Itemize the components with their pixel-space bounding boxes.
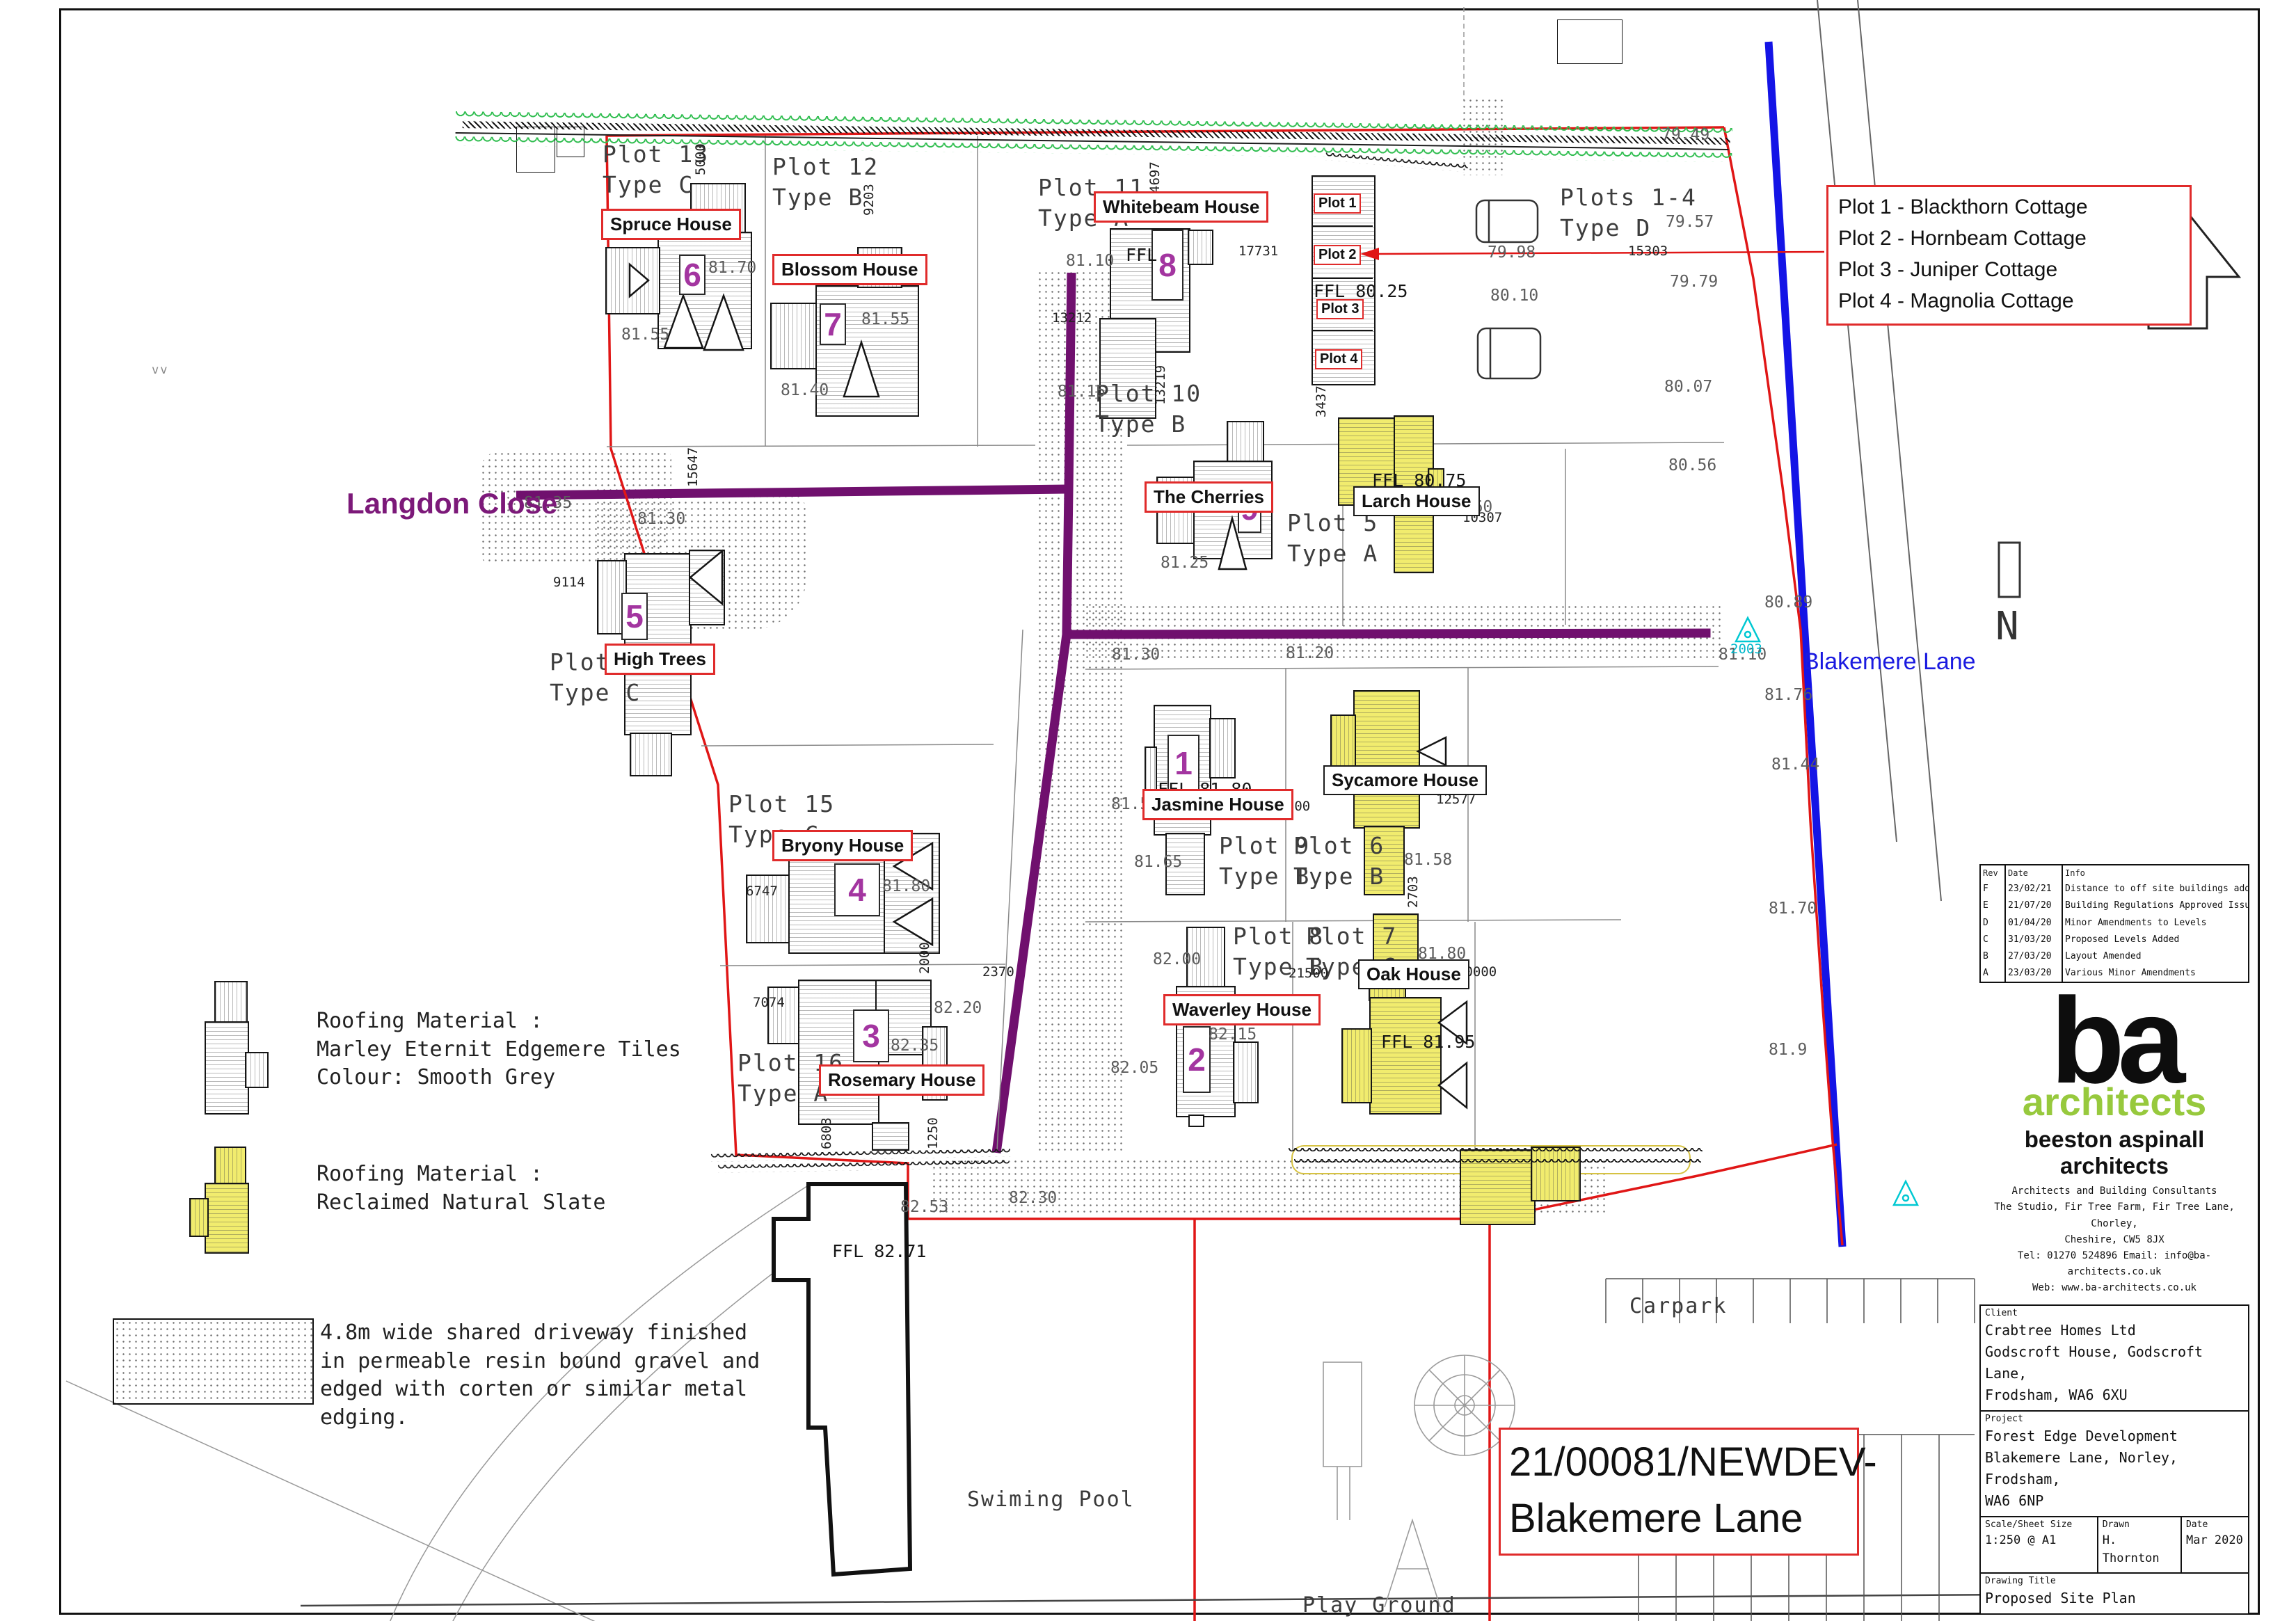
client-label: Client: [1981, 1306, 2248, 1318]
dimension: 5000: [693, 143, 708, 175]
building-regs-stamp: BUILDING REGULATIONS APPROVED: [1979, 1615, 2249, 1621]
spot-level: 81.40: [781, 381, 829, 399]
dimension: 7074: [753, 995, 785, 1010]
spot-level: 82.53: [900, 1198, 948, 1216]
spot-level: 81.58: [1404, 851, 1452, 869]
client-box: Client Crabtree Homes Ltd Godscroft Hous…: [1979, 1304, 2249, 1412]
house-label-blossom: Blossom House: [772, 254, 927, 285]
spot-level: 81.30: [1112, 646, 1160, 664]
langdon-close-label: Langdon Close: [346, 487, 557, 520]
playground-icons: [1323, 1355, 1515, 1607]
rev-cell: A: [1981, 965, 2006, 982]
roofing-note-slate: Roofing Material : Reclaimed Natural Sla…: [317, 1160, 605, 1217]
spot-level: 81.9: [1769, 1041, 1807, 1059]
rev-cell: C: [1981, 932, 2006, 948]
dimension: 6803: [819, 1117, 834, 1149]
dimension: 2703: [1405, 876, 1421, 908]
plot-label-10: Plot 10 Type B: [1095, 378, 1202, 439]
spot-level: 82.35: [891, 1037, 939, 1055]
spot-level: 81.10: [1066, 252, 1114, 270]
ffl-label: FFL 82.71: [832, 1241, 926, 1261]
architects-logo-text: architects: [1979, 1085, 2249, 1119]
dimension: 4697: [1147, 161, 1163, 193]
spot-level: 81.76: [1764, 686, 1812, 704]
planning-ref-box: 21/00081/NEWDEV- Blakemere Lane: [1499, 1428, 1859, 1556]
legend-item: Plot 3 - Juniper Cottage: [1838, 254, 2190, 285]
rev-cell: F: [1981, 881, 2006, 897]
spot-level: 81.25: [1161, 554, 1209, 572]
plot-label-6: Plot 6 Type B: [1293, 831, 1385, 891]
revision-table: Rev Date Info F 23/02/21 Distance to off…: [1979, 864, 2249, 983]
date-col-header: Date: [2006, 865, 2063, 881]
legend-item: Plot 4 - Magnolia Cottage: [1838, 285, 2190, 317]
spot-level: 80.07: [1664, 378, 1712, 396]
rev-cell: Building Regulations Approved Issue: [2063, 897, 2248, 914]
dimension: 15303: [1628, 243, 1668, 259]
unit-number-6: 6: [679, 255, 705, 295]
spot-level: 81.15: [1058, 383, 1106, 401]
house-label-spruce: Spruce House: [601, 209, 741, 240]
spot-level: 80.56: [1668, 456, 1716, 474]
rev-cell: 01/04/20: [2006, 915, 2063, 932]
house-label-larch: Larch House: [1353, 486, 1480, 516]
spot-level: 81.70: [1769, 900, 1817, 918]
date-value: Mar 2020: [2182, 1530, 2248, 1554]
spot-level: 82.15: [1209, 1025, 1257, 1044]
spot-level: 81.20: [1286, 644, 1334, 662]
date-label: Date: [2182, 1517, 2248, 1530]
dimension: 2000: [917, 942, 932, 974]
spot-level: 81.80: [882, 877, 930, 895]
rev-cell: Proposed Levels Added: [2063, 932, 2248, 948]
spot-level: 81.30: [637, 510, 685, 528]
dimension: 9114: [553, 575, 585, 590]
swimming-pool-label: Swiming Pool: [967, 1487, 1135, 1512]
firm-name: beeston aspinall architects: [1979, 1126, 2249, 1179]
rev-cell: D: [1981, 915, 2006, 932]
unit-number-4: 4: [834, 863, 880, 916]
dimension: 3437: [1314, 385, 1329, 417]
ba-logo: ba: [1979, 993, 2249, 1090]
spot-level: 82.20: [934, 999, 982, 1017]
unit-number-7: 7: [820, 303, 846, 345]
drawing-title-box: Drawing Title Proposed Site Plan: [1979, 1574, 2249, 1615]
rev-cell: 27/03/20: [2006, 948, 2063, 965]
spot-level: 82.30: [1009, 1189, 1057, 1207]
north-letter: N: [1995, 604, 2020, 649]
plot1-tag: Plot 1: [1314, 193, 1361, 214]
spot-level: 80.10: [1490, 287, 1538, 305]
ffl-label: FFL 81.95: [1381, 1032, 1475, 1052]
north-arrow-shaft: [1999, 543, 2020, 597]
spot-level: 81.55: [861, 310, 909, 328]
plot3-tag: Plot 3: [1316, 299, 1364, 319]
survey-ref: 2003: [1730, 641, 1762, 657]
rev-cell: E: [1981, 897, 2006, 914]
blakemere-lane-label: Blakemere Lane: [1803, 648, 1976, 676]
unit-number-8: 8: [1151, 230, 1183, 301]
spot-level: 80.89: [1764, 593, 1812, 612]
ffl-label: FFL 80.25: [1314, 281, 1408, 301]
scale-value: 1:250 @ A1: [1981, 1530, 2097, 1554]
house-label-cherries: The Cherries: [1145, 481, 1273, 513]
spot-level: 82.05: [1110, 1059, 1158, 1077]
dimension: 2370: [982, 964, 1014, 980]
play-ground-label: Play Ground: [1302, 1593, 1456, 1618]
house-label-hightrees: High Trees: [605, 644, 715, 675]
plot2-tag: Plot 2: [1314, 245, 1361, 265]
rev-col-header: Rev: [1981, 865, 2006, 881]
spot-level: 81.70: [708, 259, 756, 277]
firm-contact-lines: Architects and Building Consultants The …: [1979, 1183, 2249, 1296]
dimension: 13219: [1153, 365, 1168, 405]
planning-ref-line2: Blakemere Lane: [1509, 1490, 1857, 1547]
drawing-title-label: Drawing Title: [1981, 1574, 2248, 1586]
rev-cell: 23/02/21: [2006, 881, 2063, 897]
rev-cell: 21/07/20: [2006, 897, 2063, 914]
title-block: Rev Date Info F 23/02/21 Distance to off…: [1979, 864, 2249, 1621]
plot4-tag: Plot 4: [1315, 349, 1362, 369]
plot2-pointer-arrow: [1360, 248, 1824, 260]
rev-cell: Layout Amended: [2063, 948, 2248, 965]
drawing-title-value: Proposed Site Plan: [1981, 1586, 2248, 1613]
house-label-jasmine: Jasmine House: [1142, 789, 1293, 820]
spot-level: 82.00: [1153, 950, 1201, 968]
dimension: 9203: [861, 184, 877, 216]
roofing-note-grey: Roofing Material : Marley Eternit Edgeme…: [317, 1007, 681, 1092]
cottages-legend: Plot 1 - Blackthorn Cottage Plot 2 - Hor…: [1826, 185, 2192, 326]
house-label-oak: Oak House: [1358, 959, 1469, 989]
dimension: 13212: [1052, 310, 1092, 326]
dimension: 21500: [1289, 966, 1328, 981]
spot-level: 81.44: [1771, 756, 1819, 774]
spot-level: 81.65: [1134, 853, 1182, 871]
spot-level: 79.57: [1666, 213, 1714, 231]
plot-label-5: Plot 5 Type A: [1287, 508, 1378, 568]
spot-level: 79.49: [1661, 126, 1709, 144]
unit-number-3: 3: [853, 1009, 889, 1062]
info-col-header: Info: [2063, 865, 2248, 881]
dimension: 17731: [1238, 243, 1278, 259]
legend-item: Plot 1 - Blackthorn Cottage: [1838, 191, 2190, 223]
drawn-label: Drawn: [2098, 1517, 2181, 1530]
scale-drawn-date-row: Scale/Sheet Size 1:250 @ A1 Drawn H. Tho…: [1979, 1517, 2249, 1574]
spot-level: 79.79: [1670, 273, 1718, 291]
legend-item: Plot 2 - Hornbeam Cottage: [1838, 223, 2190, 254]
rev-cell: B: [1981, 948, 2006, 965]
drawn-value: H. Thornton: [2098, 1530, 2181, 1572]
dimension: 15647: [685, 447, 701, 487]
planning-ref-line1: 21/00081/NEWDEV-: [1509, 1434, 1857, 1490]
project-value: Forest Edge Development Blakemere Lane, …: [1981, 1424, 2248, 1516]
survey-station-icons: [1736, 618, 1918, 1205]
house-label-whitebeam: Whitebeam House: [1094, 191, 1268, 223]
firm-logo-block: ba architects beeston aspinall architect…: [1979, 993, 2249, 1296]
ffl-label: FFL: [1126, 245, 1157, 265]
project-box: Project Forest Edge Development Blakemer…: [1979, 1412, 2249, 1517]
project-label: Project: [1981, 1412, 2248, 1424]
house-label-waverley: Waverley House: [1163, 994, 1321, 1025]
dimension: 6747: [746, 884, 778, 899]
dimension: 1250: [925, 1117, 941, 1149]
unit-number-2: 2: [1183, 1026, 1211, 1093]
house-label-bryony: Bryony House: [772, 830, 913, 861]
rev-cell: 31/03/20: [2006, 932, 2063, 948]
spot-level: 79.98: [1488, 243, 1536, 262]
scale-label: Scale/Sheet Size: [1981, 1517, 2097, 1530]
unit-number-5: 5: [621, 593, 648, 640]
vv-mark: vv: [152, 363, 168, 377]
house-label-rosemary: Rosemary House: [819, 1064, 984, 1096]
rev-cell: Distance to off site buildings added: [2063, 881, 2248, 897]
rev-cell: Minor Amendments to Levels: [2063, 915, 2248, 932]
house-label-sycamore: Sycamore House: [1323, 765, 1487, 795]
spot-level: 81.55: [621, 326, 669, 344]
client-value: Crabtree Homes Ltd Godscroft House, Gods…: [1981, 1318, 2248, 1410]
site-plan-sheet: Plot 13 Type C Plot 12 Type B Plot 11 Ty…: [0, 0, 2296, 1621]
driveway-note: 4.8m wide shared driveway finished in pe…: [320, 1319, 760, 1432]
carpark-label: Carpark: [1629, 1294, 1727, 1318]
